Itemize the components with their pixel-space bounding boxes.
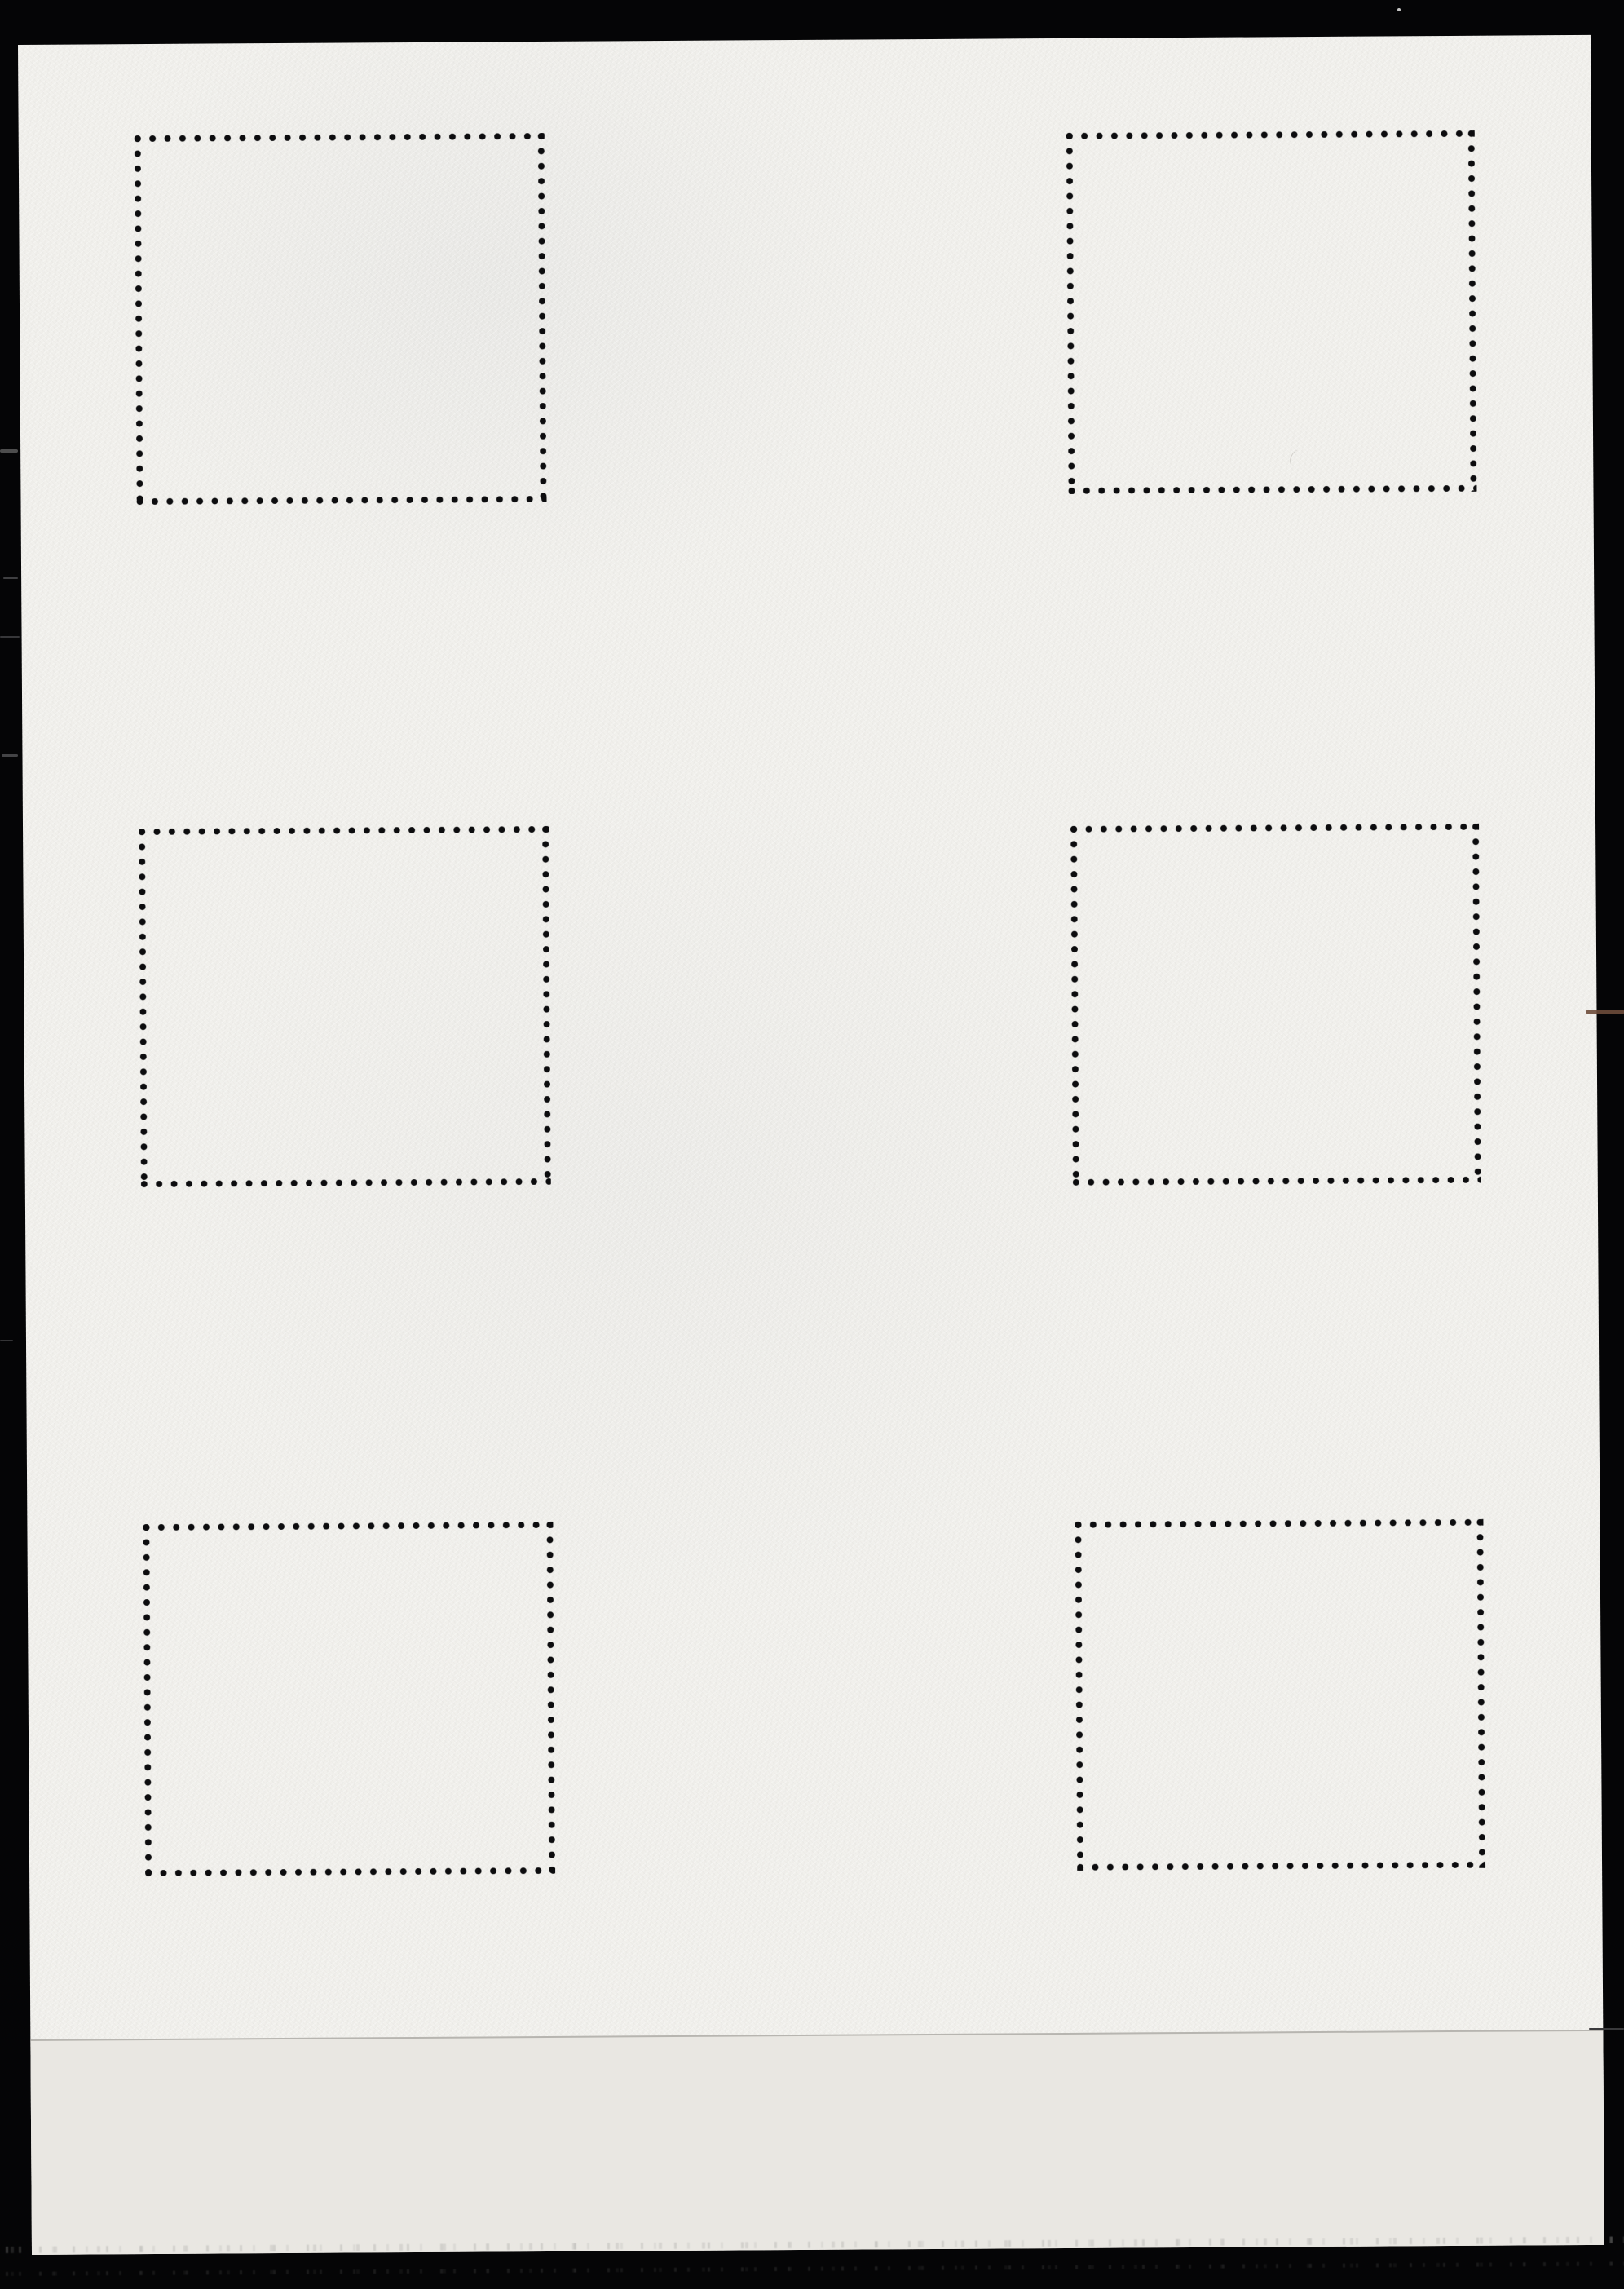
left-border-scratch-mark xyxy=(0,1340,13,1341)
perforation-edge-right xyxy=(1476,1519,1485,1868)
perforation-edge-bottom xyxy=(1073,1177,1481,1186)
perforation-edge-left xyxy=(1070,826,1079,1186)
perforation-edge-right xyxy=(538,133,547,502)
perforation-edge-right xyxy=(546,1522,555,1874)
stamp-perforation-outline xyxy=(1074,827,1478,1182)
perforation-edge-left xyxy=(143,1524,152,1876)
perforation-edge-bottom xyxy=(1077,1862,1485,1871)
perforation-edge-left xyxy=(1075,1522,1083,1871)
stamp-perforation-outline xyxy=(138,136,544,502)
white-dust-speck xyxy=(1397,8,1401,11)
perforation-edge-top xyxy=(1070,824,1479,833)
left-border-scratch-mark xyxy=(2,754,18,757)
stamps-layer xyxy=(18,35,1591,45)
perforation-edge-top xyxy=(135,133,545,142)
bottom-edge-dust-band-faint xyxy=(0,2261,1624,2276)
perforation-edge-top xyxy=(1066,130,1475,139)
left-border-scratch-mark xyxy=(0,449,18,453)
stamp-perforation-outline xyxy=(1070,134,1474,491)
perforation-edge-right xyxy=(1468,130,1477,492)
left-border-scratch-mark xyxy=(0,636,20,638)
left-border-scratch-mark xyxy=(3,577,18,579)
stamp-perforation-outline xyxy=(1078,1522,1482,1867)
perforation-edge-right xyxy=(1472,824,1481,1183)
fold-line-overhang xyxy=(1589,2028,1624,2030)
stamp-perforation-outline xyxy=(142,829,548,1184)
sheet-fold-lower-band xyxy=(30,2030,1604,2255)
perforation-edge-left xyxy=(139,829,148,1187)
stamp-perforation-outline xyxy=(146,1525,552,1873)
perforation-edge-left xyxy=(1066,133,1075,494)
stamp-sheet xyxy=(18,35,1604,2255)
perforation-edge-bottom xyxy=(136,496,546,505)
right-border-scratch-mark xyxy=(1586,1010,1624,1014)
scanner-background xyxy=(0,0,1624,2289)
perforation-edge-top xyxy=(1075,1519,1483,1528)
perforation-edge-top xyxy=(139,826,549,835)
perforation-edge-bottom xyxy=(1068,485,1476,494)
perforation-edge-right xyxy=(542,826,551,1185)
perforation-edge-top xyxy=(143,1522,553,1531)
perforation-edge-bottom xyxy=(145,1867,555,1876)
perforation-edge-bottom xyxy=(141,1178,551,1187)
perforation-edge-left xyxy=(135,135,143,505)
